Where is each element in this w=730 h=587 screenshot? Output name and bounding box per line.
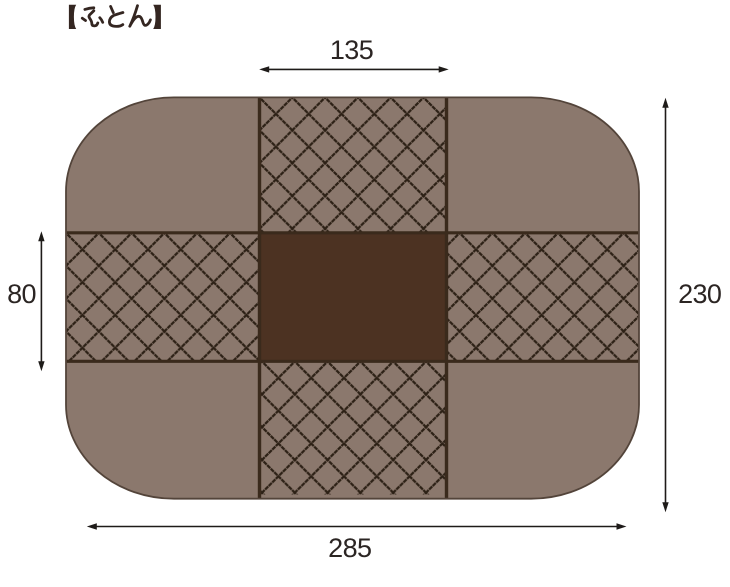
svg-text:230: 230 [678,279,721,309]
svg-text:285: 285 [328,533,371,563]
svg-text:135: 135 [330,35,373,65]
svg-text:80: 80 [7,279,36,309]
